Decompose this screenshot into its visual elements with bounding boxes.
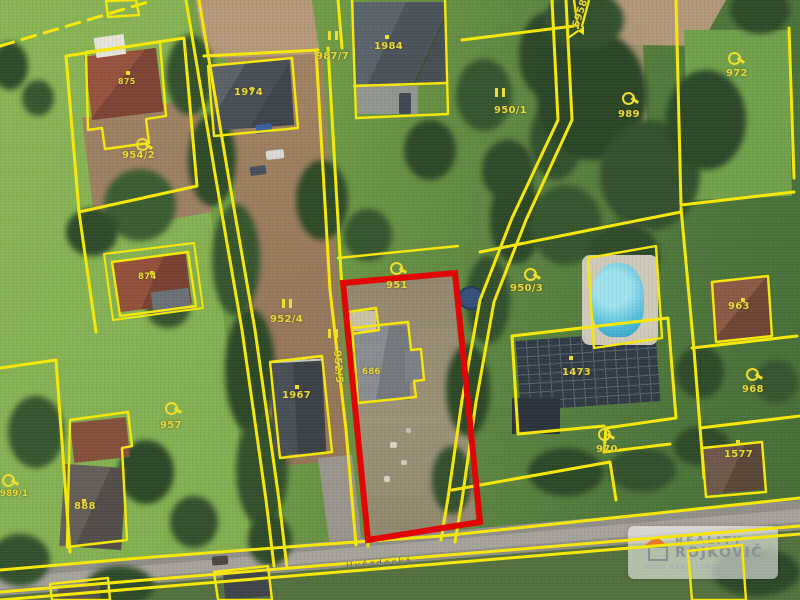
parcel-label: 963: [728, 301, 750, 312]
garden-symbol-icon: [598, 428, 611, 441]
parcel-label: 950/3: [510, 283, 543, 294]
parcel-label: 989/1: [0, 489, 28, 499]
parcel-label: 957: [160, 420, 182, 431]
parcel-label: 874: [138, 272, 157, 282]
garden-symbol-icon: [728, 52, 741, 65]
parcel-boundary-overlay: [0, 0, 800, 600]
garden-symbol-icon: [390, 262, 403, 275]
parcel-label: 888: [74, 501, 96, 512]
parcel-label: 987/7: [316, 51, 349, 62]
parcel-label: 989: [618, 109, 640, 120]
garden-symbol-icon: [165, 402, 178, 415]
cadastral-map-view[interactable]: REALITY ROJKOVIČ WWW.REALITYROJKOVIC.CZ: [0, 0, 800, 600]
building-symbol: [385, 35, 389, 39]
parcel-label: 1473: [562, 367, 591, 378]
building-symbol: [295, 385, 299, 389]
land-class-symbol: [282, 299, 292, 308]
parcel-label: 951: [386, 280, 408, 291]
highlighted-parcel-outline: [343, 273, 480, 540]
parcel-label: 952/5: [331, 350, 344, 384]
parcel-label: 952/4: [270, 314, 303, 325]
parcel-label: 1984: [374, 41, 403, 52]
parcel-label: 950/1: [494, 105, 527, 116]
parcel-label: 970: [596, 444, 618, 455]
parcel-label: 1974: [234, 87, 263, 98]
garden-symbol-icon: [2, 474, 15, 487]
garden-symbol-icon: [622, 92, 635, 105]
parcel-label: 1577: [724, 449, 753, 460]
building-symbol: [569, 356, 573, 360]
parcel-label: 972: [726, 68, 748, 79]
land-class-symbol: [328, 329, 338, 338]
land-class-symbol: [328, 31, 338, 40]
building-symbol: [126, 71, 130, 75]
parcel-label: 954/2: [122, 150, 155, 161]
garden-symbol-icon: [746, 368, 759, 381]
parcel-label: 875: [118, 77, 136, 86]
parcel-label: 1967: [282, 390, 311, 401]
parcel-boundary-lines: [0, 0, 800, 600]
parcel-label: 686: [362, 367, 381, 377]
building-symbol: [736, 440, 740, 444]
garden-symbol-icon: [524, 268, 537, 281]
land-class-symbol: [495, 88, 505, 97]
parcel-label: 968: [742, 384, 764, 395]
